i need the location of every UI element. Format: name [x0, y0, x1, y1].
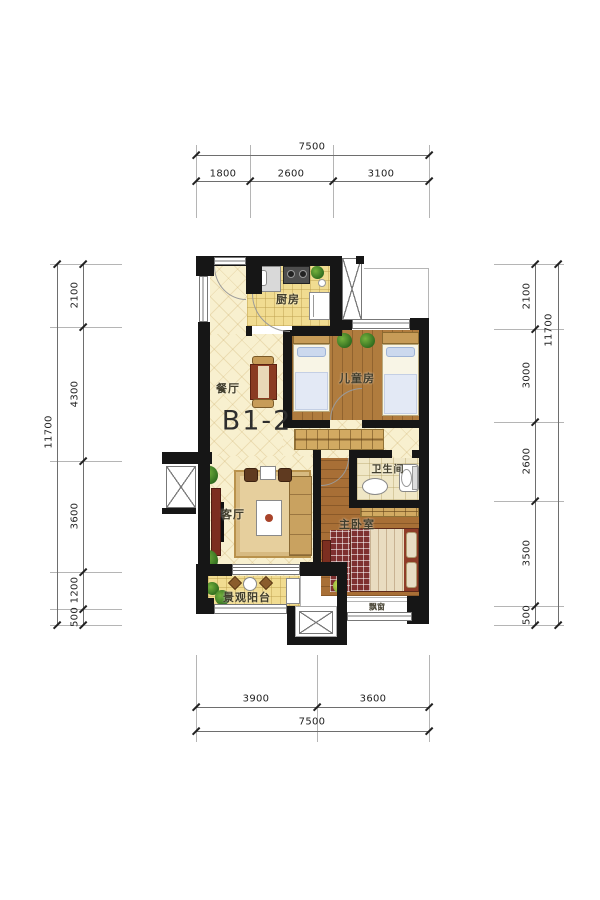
children-bed-left-pillow: [297, 347, 326, 357]
wall-balcony-band-left: [196, 564, 232, 576]
master-bed-duvet: [370, 529, 404, 591]
dim-left-total: 11700: [44, 415, 55, 448]
dim-left-seg-4: 1200: [70, 577, 81, 604]
wall-right: [419, 318, 429, 624]
floorplan: 厨房 餐厅 B1-2 儿童房 卫生间 客厅 主卧室 景观阳台 飘窗 7500 1…: [0, 0, 600, 900]
kitchen-plant: [311, 266, 324, 279]
dim-top-total: 7500: [299, 142, 326, 153]
wall-kitchen-bottom-right: [292, 326, 342, 336]
wall-bath-bottom: [349, 500, 419, 508]
dim-right-seg-3: 2600: [522, 448, 533, 475]
hallway-wardrobe: [294, 429, 384, 450]
dimline-bottom-segments: [196, 707, 429, 708]
kitchen-dish: [318, 279, 326, 287]
master-pillow-1: [406, 532, 417, 558]
sofa: [289, 476, 312, 556]
ext-bottom-2: [317, 655, 318, 742]
dim-bottom-seg-2: 3600: [360, 694, 387, 705]
dim-top-seg-1: 1800: [210, 169, 237, 180]
refrigerator-handle: [313, 295, 314, 317]
dining-label: 餐厅: [216, 380, 240, 396]
balcony-cabinet: [286, 578, 300, 604]
children-bed-right-pillow: [386, 347, 415, 357]
elevator-shaft: [166, 466, 196, 508]
master-bed-throw: [351, 529, 370, 591]
wall-balcony-band-right: [300, 562, 347, 576]
dim-right-seg-1: 2100: [522, 283, 533, 310]
ac-unit: [299, 611, 333, 634]
wall-elevator-stub: [162, 508, 196, 514]
balcony-railing-window: [214, 604, 287, 614]
children-label: 儿童房: [339, 370, 375, 386]
balcony-right-line: [300, 576, 301, 606]
dimline-right-segments: [535, 264, 536, 625]
wall-ac-right-pillar: [337, 576, 347, 645]
unit-label: B1-2: [222, 406, 293, 437]
entry-side-window: [199, 276, 208, 322]
armchair-right: [278, 468, 292, 482]
children-plant-2: [360, 333, 375, 348]
dim-top-seg-3: 3100: [368, 169, 395, 180]
wall-bath-top-2: [412, 450, 419, 458]
dimline-top-total: [196, 155, 429, 156]
wall-topleft-pillar: [196, 256, 214, 276]
wall-entry-pillar: [246, 256, 262, 294]
duct-cap: [356, 256, 364, 264]
ext-left-3: [50, 461, 122, 462]
duct-shaft: [342, 258, 362, 320]
roof-outline-right: [428, 268, 429, 318]
ext-right-6: [494, 625, 564, 626]
ext-left-6: [50, 625, 122, 626]
bay-window-outer: [347, 612, 412, 621]
wall-ac-bottom: [287, 637, 345, 645]
roof-outline-top: [364, 268, 428, 269]
wall-corner-bottom-left: [196, 598, 214, 614]
dim-right-seg-5: 500: [522, 605, 533, 625]
dimline-bottom-total: [196, 731, 429, 732]
dim-bottom-seg-1: 3900: [243, 694, 270, 705]
dim-left-seg-2: 4300: [70, 381, 81, 408]
dimline-left-total: [57, 264, 58, 625]
ext-left-2: [50, 327, 122, 328]
wall-jog-left: [162, 452, 212, 464]
bathroom-label: 卫生间: [372, 461, 405, 476]
dim-right-total: 11700: [544, 313, 555, 346]
tv-cabinet: [211, 488, 221, 556]
ext-right-3: [494, 422, 564, 423]
ext-right-1: [494, 264, 564, 265]
master-label: 主卧室: [339, 516, 375, 532]
dim-right-seg-4: 3500: [522, 540, 533, 567]
ext-left-4: [50, 572, 122, 573]
living-label: 客厅: [221, 506, 245, 522]
dimline-top-segments: [196, 181, 429, 182]
balcony-slider-window: [232, 564, 300, 575]
coffee-table-decor: [265, 514, 273, 522]
stove-burner-left: [287, 270, 295, 278]
dim-top-seg-2: 2600: [278, 169, 305, 180]
wall-left-mid: [198, 464, 210, 576]
ext-left-1: [50, 264, 122, 265]
wall-living-bedroom: [313, 450, 321, 576]
wall-kitchen-right: [330, 256, 342, 330]
dimline-right-total: [558, 264, 559, 625]
children-bed-right-headboard: [382, 332, 419, 344]
bay-window-label: 飘窗: [369, 602, 385, 613]
entry-door-threshold: [214, 257, 246, 265]
kitchen-label: 厨房: [276, 291, 300, 307]
wall-left-upper: [198, 322, 210, 452]
dim-bottom-total: 7500: [299, 717, 326, 728]
children-bed-left-blanket: [295, 372, 328, 410]
balcony-label: 景观阳台: [223, 589, 271, 605]
dim-right-seg-2: 3000: [522, 362, 533, 389]
dim-left-seg-3: 3600: [70, 503, 81, 530]
side-table: [260, 466, 276, 480]
stove-burner-right: [299, 270, 307, 278]
master-pillow-2: [406, 562, 417, 588]
toilet-tank: [412, 466, 418, 490]
bay-window-sill-line: [347, 597, 407, 598]
wall-kitchen-bottom-left: [246, 326, 252, 336]
armchair-left: [244, 468, 258, 482]
children-window: [352, 319, 410, 329]
dim-left-seg-1: 2100: [70, 282, 81, 309]
dining-table-runner: [258, 366, 269, 398]
dim-left-seg-5: 500: [70, 607, 81, 627]
wall-children-bottom-right: [362, 420, 419, 428]
children-bed-right-blanket: [384, 374, 417, 414]
ext-left-5: [50, 609, 122, 610]
bathroom-sink: [362, 478, 388, 495]
wall-balcony-left: [196, 576, 208, 600]
ext-right-4: [494, 501, 564, 502]
